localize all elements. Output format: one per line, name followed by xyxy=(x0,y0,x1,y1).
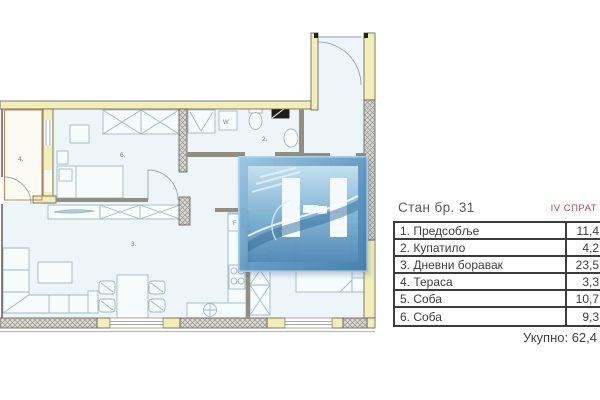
room-name: 1. Предсобље xyxy=(395,223,567,238)
room-area: 10,7 xyxy=(567,291,600,306)
floorplan-page: 4. 6. 3. 2. W F xyxy=(0,0,600,400)
nightstand xyxy=(70,125,89,143)
room-name: 4. Тераса xyxy=(395,274,567,289)
room-area: 9,3 xyxy=(567,308,600,325)
tv-cabinet xyxy=(48,205,100,219)
area-table: 1. Предсобље 11,4 2. Купатило 4,2 3. Дне… xyxy=(393,221,600,327)
room-name: 2. Купатило xyxy=(395,240,567,255)
low-cabinet xyxy=(100,205,180,219)
table-row: 6. Соба 9,3 xyxy=(395,308,600,325)
room-area: 11,4 xyxy=(567,223,600,238)
room-label-bathroom: 2. xyxy=(262,136,268,143)
wardrobe-bedroom6 xyxy=(103,110,179,134)
room-area: 23,5 xyxy=(567,257,600,272)
table-row: 5. Соба 10,7 xyxy=(395,291,600,308)
coffee-table xyxy=(38,262,72,283)
room-name: 6. Соба xyxy=(395,308,567,325)
room-label-terrace: 4. xyxy=(18,156,24,163)
washing-machine-label: W xyxy=(223,120,229,126)
total-area: Укупно: 62,4 xyxy=(523,330,597,345)
table-row: 4. Тераса 3,3 xyxy=(395,274,600,291)
room-area: 3,3 xyxy=(567,274,600,289)
table-row: 3. Дневни боравак 23,5 xyxy=(395,257,600,274)
room-area: 4,2 xyxy=(567,240,600,255)
room-label-bedroom6: 6. xyxy=(120,152,126,159)
dining-table xyxy=(117,275,148,318)
agency-logo-watermark xyxy=(238,156,368,272)
room-label-living: 3. xyxy=(131,241,137,248)
bed-bedroom6 xyxy=(57,166,123,198)
logo-graphic xyxy=(238,156,368,272)
room-name: 5. Соба xyxy=(395,291,567,306)
floor-label: IV СПРАТ xyxy=(551,203,597,214)
table-row: 2. Купатило 4,2 xyxy=(395,240,600,257)
bathroom-sink xyxy=(284,129,298,147)
room-name: 3. Дневни боравак xyxy=(395,257,567,272)
shelf xyxy=(57,151,68,164)
table-row: 1. Предсобље 11,4 xyxy=(395,223,600,240)
toilet xyxy=(249,107,262,130)
shower xyxy=(188,110,215,133)
apartment-title: Стан бр. 31 xyxy=(398,200,475,215)
fridge-label: F xyxy=(233,221,237,227)
